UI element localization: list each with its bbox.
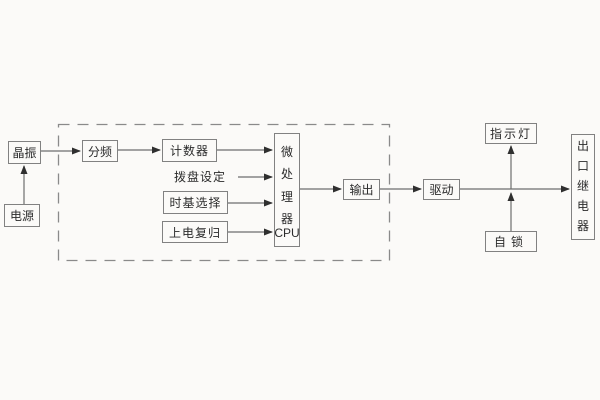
node-self-lock: 自锁: [485, 231, 537, 252]
node-power-supply-label: 电源: [10, 207, 34, 224]
node-dial-setting: 拨盘设定: [167, 168, 233, 185]
node-timebase-select-label: 时基选择: [169, 194, 221, 211]
node-self-lock-label: 自锁: [494, 233, 528, 250]
node-power-supply: 电源: [4, 204, 40, 227]
node-outlet-relay: 出口继电器: [571, 134, 595, 240]
node-output-label: 输出: [349, 181, 373, 198]
node-frequency-divider: 分频: [82, 140, 118, 162]
node-power-on-reset: 上电复归: [162, 221, 228, 243]
node-power-on-reset-label: 上电复归: [169, 224, 221, 241]
node-frequency-divider-label: 分频: [88, 143, 112, 160]
node-timebase-select: 时基选择: [163, 191, 228, 214]
node-cpu-sublabel: CPU: [274, 227, 299, 239]
node-indicator-light: 指示灯: [485, 123, 537, 144]
node-drive: 驱动: [423, 179, 460, 200]
node-drive-label: 驱动: [429, 181, 453, 198]
connector-lines-svg: [0, 0, 600, 400]
node-crystal-oscillator: 晶振: [8, 141, 41, 164]
node-outlet-relay-label: 出口继电器: [577, 137, 589, 237]
node-dial-setting-label: 拨盘设定: [174, 168, 226, 185]
node-counter: 计数器: [162, 139, 217, 162]
node-microprocessor-label: 微处理器: [281, 141, 293, 230]
node-counter-label: 计数器: [170, 142, 209, 159]
node-indicator-light-label: 指示灯: [490, 125, 532, 142]
diagram-canvas: 晶振 电源 分频 计数器 拨盘设定 时基选择 上电复归 微处理器 CPU 输出 …: [0, 0, 600, 400]
node-crystal-oscillator-label: 晶振: [12, 144, 36, 161]
node-output: 输出: [343, 179, 380, 200]
node-microprocessor-cpu: 微处理器 CPU: [274, 133, 300, 247]
